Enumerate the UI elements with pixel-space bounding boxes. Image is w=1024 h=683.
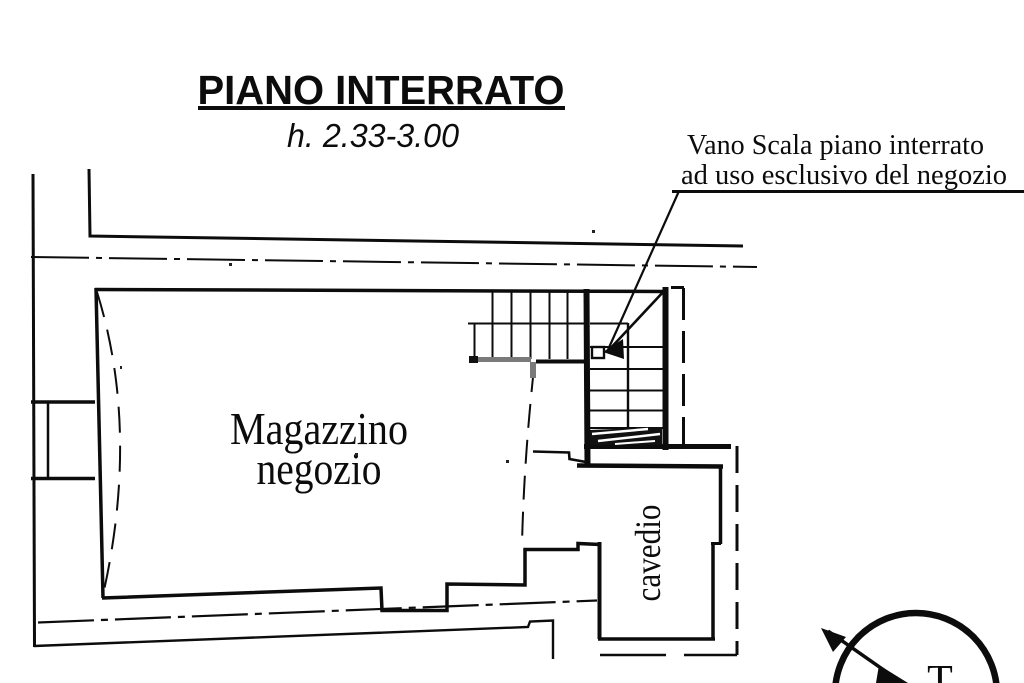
- svg-text:ad uso esclusivo del negozio: ad uso esclusivo del negozio: [681, 160, 1007, 191]
- svg-text:cavedio: cavedio: [628, 505, 668, 602]
- svg-text:Vano Scala piano interrato: Vano Scala piano interrato: [687, 130, 984, 161]
- svg-text:T: T: [927, 658, 953, 683]
- svg-text:negozio: negozio: [257, 443, 382, 494]
- svg-text:h. 2.33-3.00: h. 2.33-3.00: [287, 117, 460, 154]
